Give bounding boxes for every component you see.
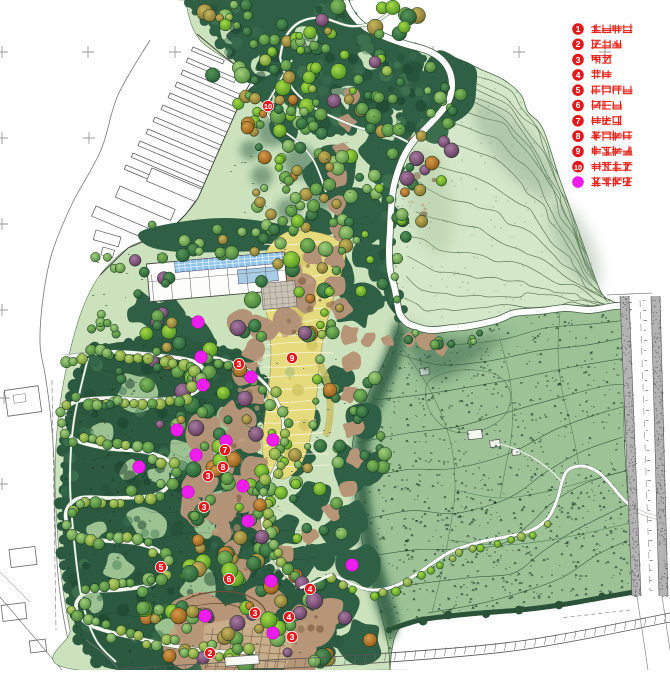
svg-text:3: 3 — [237, 359, 242, 369]
svg-text:3: 3 — [576, 55, 581, 65]
svg-text:10: 10 — [574, 163, 582, 172]
svg-text:2: 2 — [208, 648, 213, 658]
svg-text:9: 9 — [576, 146, 581, 156]
svg-text:4: 4 — [576, 70, 581, 80]
svg-text:9: 9 — [290, 353, 295, 363]
svg-text:7: 7 — [223, 445, 228, 455]
svg-text:6: 6 — [576, 100, 581, 110]
svg-text:7: 7 — [576, 116, 581, 126]
svg-text:4: 4 — [287, 612, 292, 622]
svg-text:1: 1 — [576, 24, 581, 34]
svg-text:10: 10 — [264, 102, 272, 111]
svg-text:8: 8 — [576, 131, 581, 141]
svg-text:2: 2 — [576, 39, 581, 49]
svg-text:8: 8 — [221, 462, 226, 472]
svg-text:3: 3 — [290, 632, 295, 642]
svg-text:5: 5 — [576, 85, 581, 95]
svg-text:3: 3 — [202, 502, 207, 512]
svg-text:3: 3 — [206, 471, 211, 481]
svg-text:4: 4 — [308, 584, 313, 594]
svg-text:3: 3 — [253, 608, 258, 618]
svg-text:5: 5 — [159, 562, 164, 572]
svg-text:6: 6 — [227, 574, 232, 584]
